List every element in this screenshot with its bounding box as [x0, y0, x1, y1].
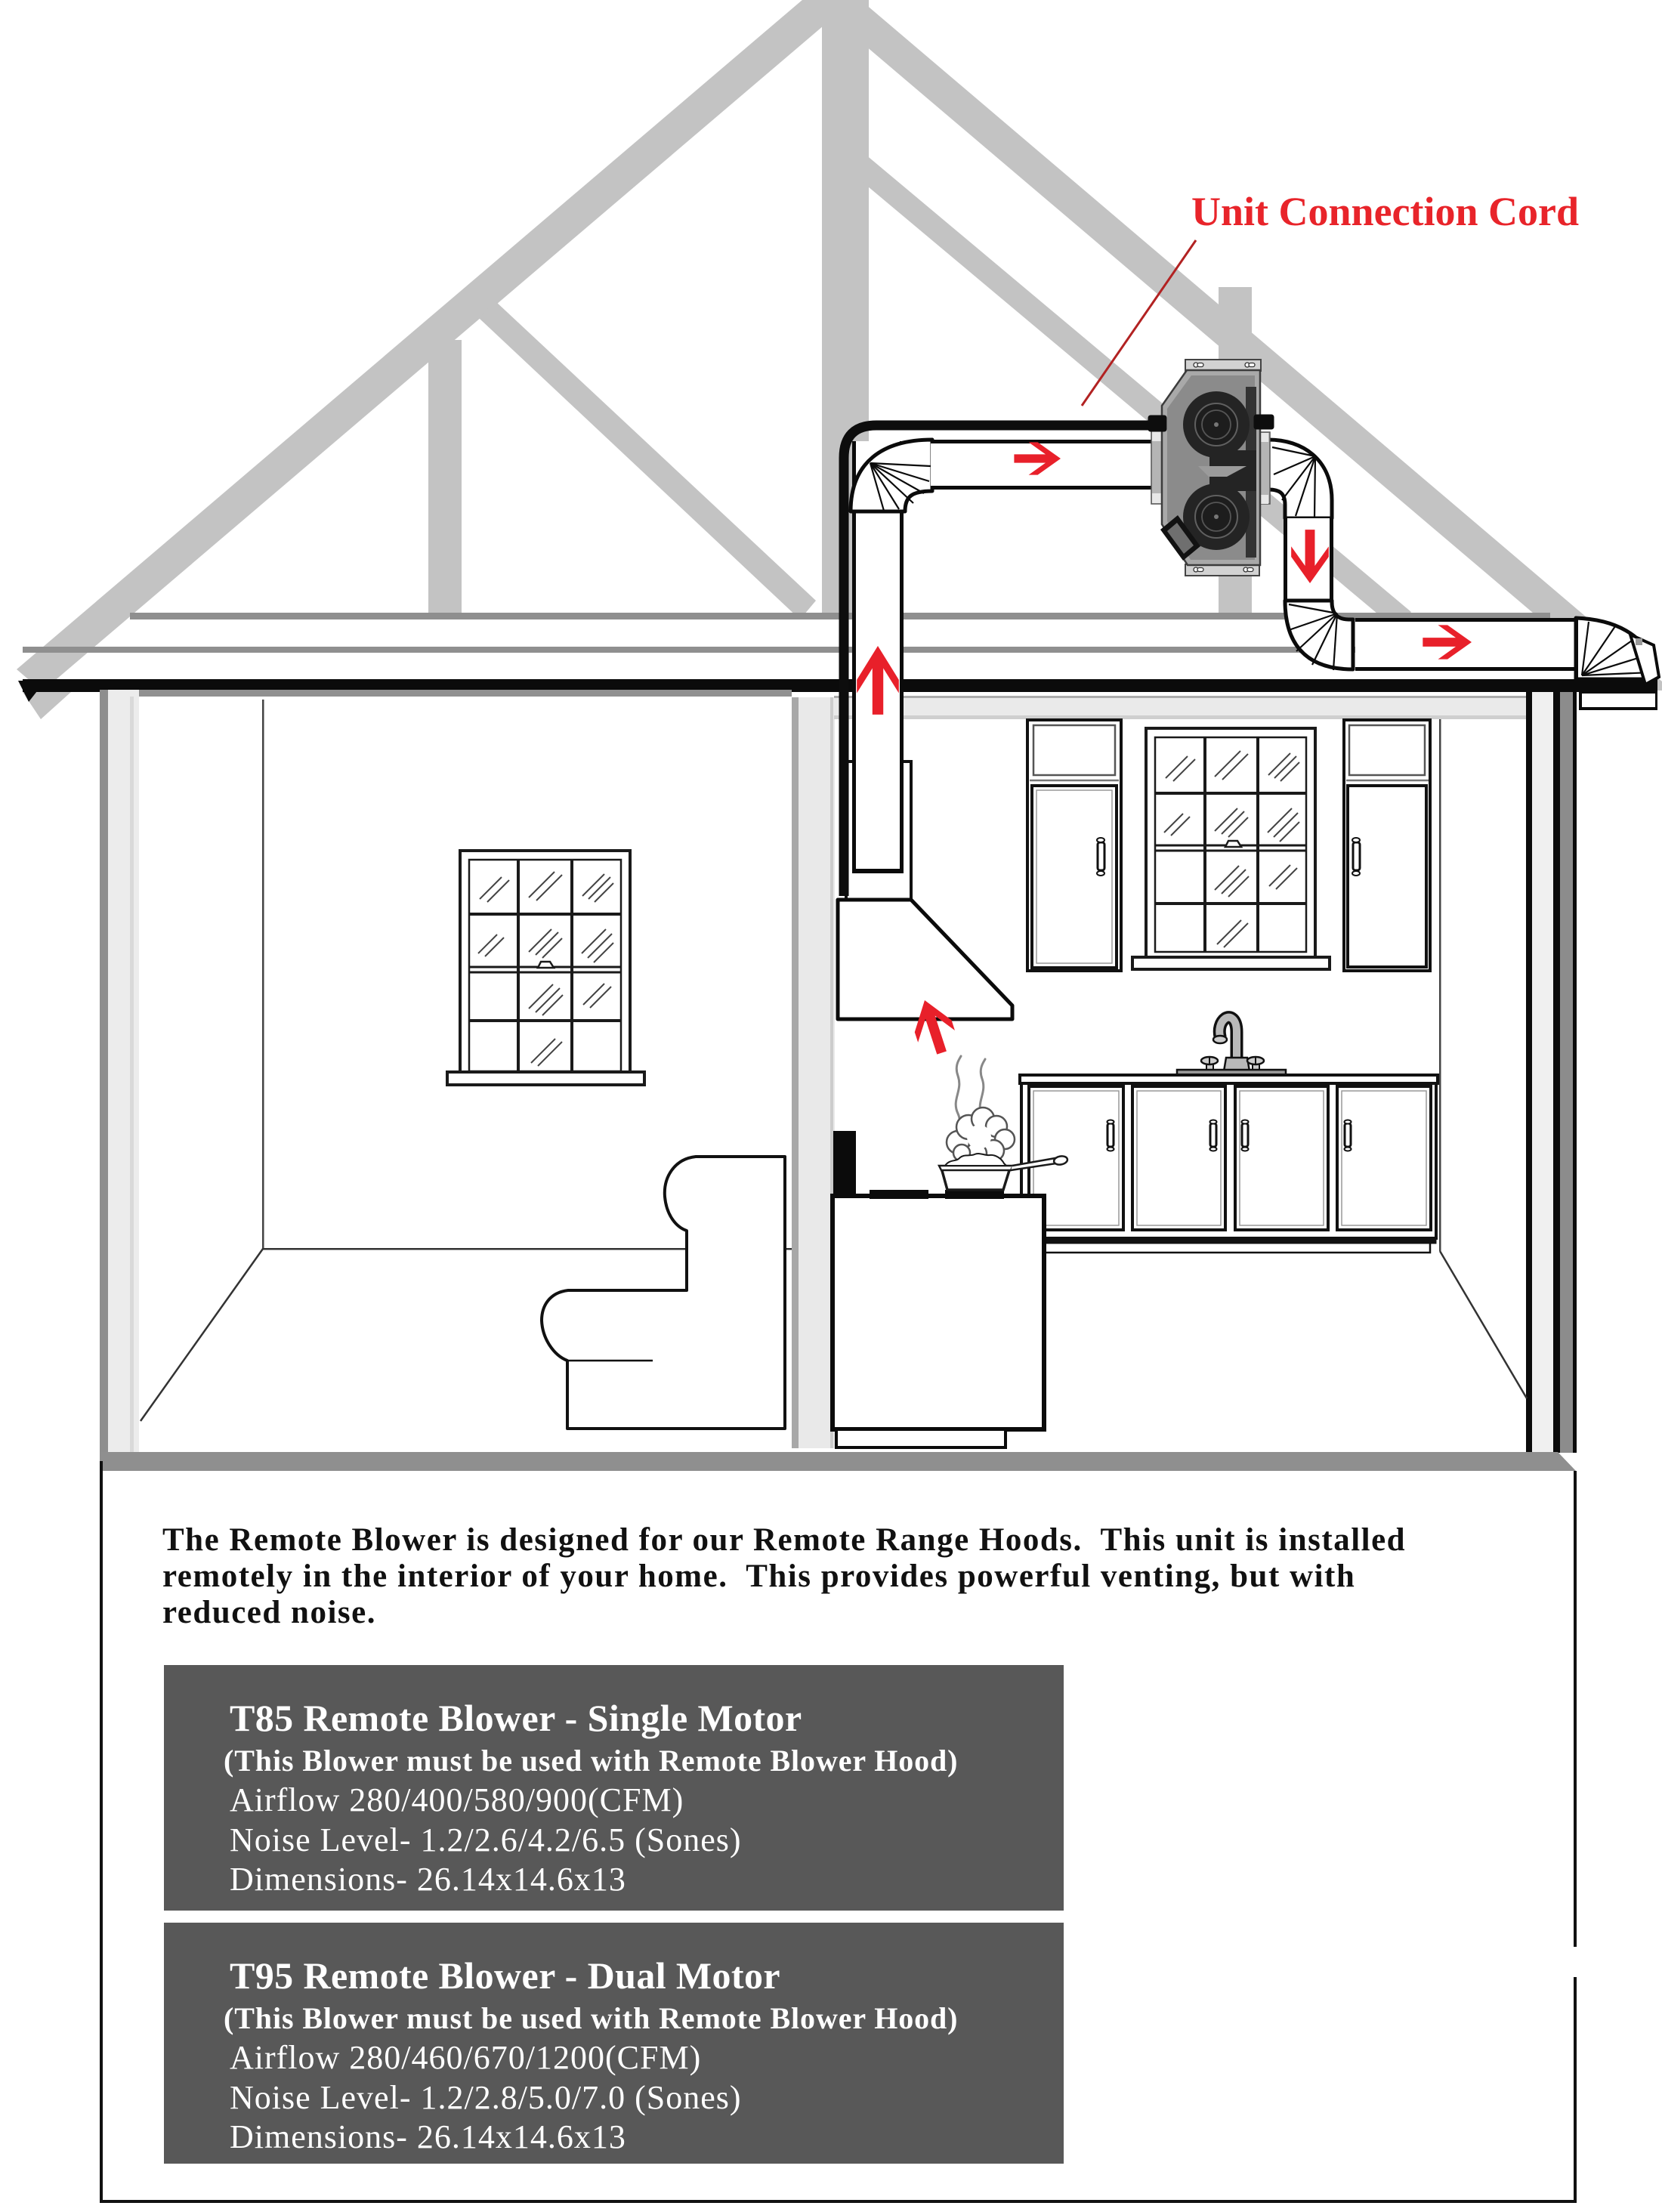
svg-text:The Remote Blower is designed: The Remote Blower is designed for our Re…: [162, 1522, 1406, 1558]
svg-text:Noise Level- 1.2/2.8/5.0/7.0 (: Noise Level- 1.2/2.8/5.0/7.0 (Sones): [230, 2079, 742, 2116]
svg-text:Airflow 280/400/580/900(CFM): Airflow 280/400/580/900(CFM): [230, 1781, 684, 1818]
svg-text:remotely in the interior of yo: remotely in the interior of your home. T…: [162, 1559, 1355, 1594]
svg-text:Dimensions- 26.14x14.6x13: Dimensions- 26.14x14.6x13: [230, 1861, 626, 1898]
svg-text:reduced noise.: reduced noise.: [162, 1595, 376, 1630]
svg-text:Dimensions- 26.14x14.6x13: Dimensions- 26.14x14.6x13: [230, 2118, 626, 2155]
svg-text:Noise Level- 1.2/2.6/4.2/6.5 (: Noise Level- 1.2/2.6/4.2/6.5 (Sones): [230, 1821, 742, 1858]
svg-text:(This Blower must be used with: (This Blower must be used with Remote Bl…: [224, 1744, 958, 1778]
svg-text:T95 Remote Blower - Dual Motor: T95 Remote Blower - Dual Motor: [230, 1954, 780, 1997]
svg-text:T85 Remote Blower - Single Mot: T85 Remote Blower - Single Motor: [230, 1697, 802, 1739]
svg-text:Unit Connection Cord: Unit Connection Cord: [1191, 189, 1579, 234]
svg-text:Airflow 280/460/670/1200(CFM): Airflow 280/460/670/1200(CFM): [230, 2039, 701, 2076]
svg-text:(This Blower must be used with: (This Blower must be used with Remote Bl…: [224, 2001, 958, 2035]
